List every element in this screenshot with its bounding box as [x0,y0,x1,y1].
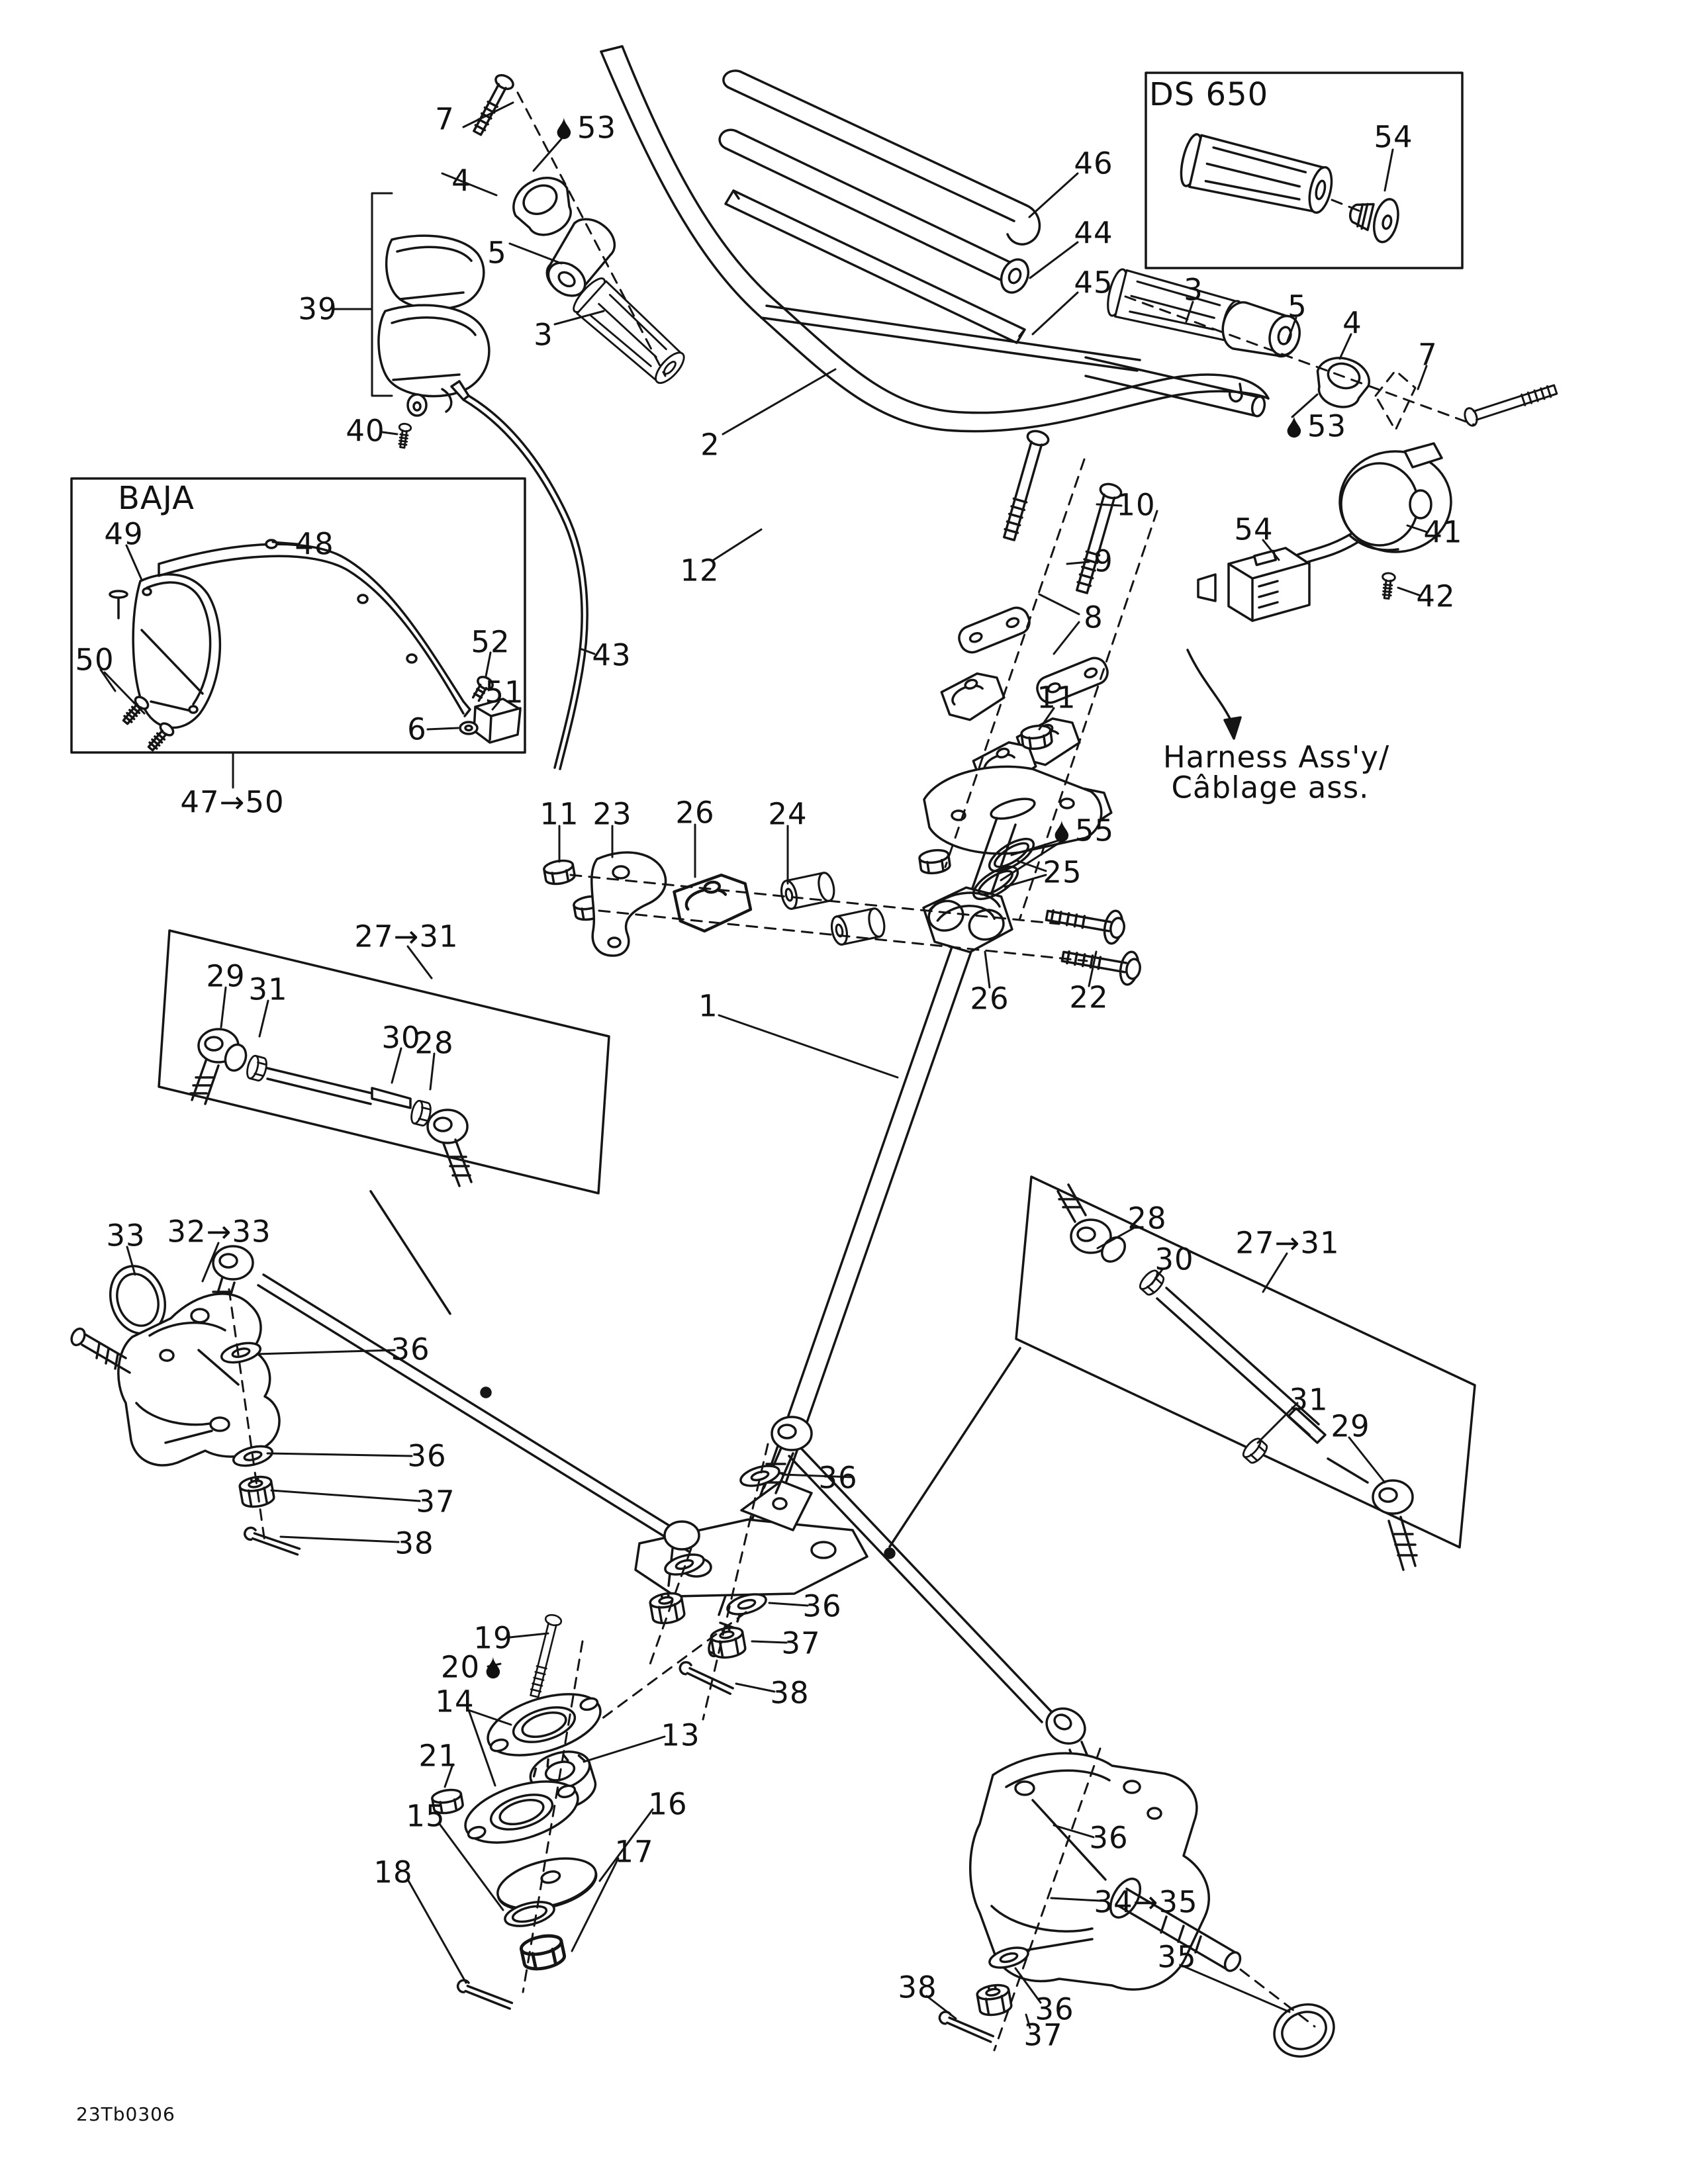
callout-33: 33 [106,1221,145,1251]
callout-3-right: 3 [1184,275,1203,305]
range-label-34-35: 34→35 [1094,1888,1197,1917]
callout-48: 48 [295,529,334,559]
callout-45: 45 [1074,268,1113,298]
screw-40 [397,423,411,448]
callout-21: 21 [418,1741,457,1771]
callout-4-left: 4 [451,166,471,196]
knuckle-right-assembly [761,1417,1342,2065]
callout-44: 44 [1074,218,1113,248]
callout-35: 35 [1157,1942,1196,1972]
tie-rod-assembled-left [208,1246,699,1586]
range-label-47-50: 47→50 [180,788,284,817]
screw-42 [1380,572,1395,599]
callout-37-c: 37 [781,1629,820,1659]
callout-13: 13 [661,1721,700,1751]
callout-23: 23 [592,799,632,829]
callout-5-left: 5 [487,238,507,268]
callout-38-lk: 38 [395,1529,434,1559]
callout-14: 14 [435,1687,474,1717]
harness-arrow [1188,650,1233,724]
callout-31-right: 31 [1289,1385,1328,1415]
callout-7-left: 7 [435,105,455,134]
baja-inset-title: BAJA [118,482,195,514]
callout-52: 52 [471,627,510,657]
callout-49: 49 [104,520,143,549]
callout-28-left: 28 [414,1028,453,1058]
callout-54-harness: 54 [1234,515,1273,545]
oil-drop-icon [1053,819,1070,842]
clamp-26-left [673,870,753,935]
callout-36-c2: 36 [802,1592,841,1621]
callout-37-rk: 37 [1023,2021,1062,2050]
switch-harness-assembly [1188,443,1451,739]
callout-10: 10 [1116,490,1155,520]
callout-36-lk2: 36 [407,1441,446,1471]
grip-end-cap-54 [1346,191,1402,245]
callout-50: 50 [75,645,114,675]
callout-15: 15 [406,1801,445,1831]
callout-51: 51 [485,678,524,707]
oil-drop-icon [1286,414,1303,438]
throttle-covers-39 [379,236,489,416]
callout-1: 1 [698,991,718,1021]
callout-46: 46 [1074,149,1113,179]
ds650-inset-title: DS 650 [1149,79,1268,111]
callout-28-right: 28 [1127,1204,1166,1234]
callout-26-lower: 26 [970,984,1009,1014]
collar-4-right [1310,352,1374,413]
handlebar-pads-drawing [720,71,1039,343]
link-plate-23 [592,852,666,956]
callout-5-right: 5 [1288,292,1307,322]
left-grip-assembly [379,72,690,769]
parts-diagram-page: 7 53 4 5 3 39 40 46 44 45 2 12 43 10 9 8… [0,0,1688,2184]
diagram-line-art [0,0,1688,2184]
callout-7-right: 7 [1418,340,1438,370]
callout-40: 40 [346,416,385,446]
callout-38-c: 38 [770,1678,809,1708]
connector-54 [1198,548,1309,621]
callout-39: 39 [298,295,337,324]
callout-42: 42 [1416,582,1455,612]
callout-25: 25 [1043,858,1082,887]
callout-2: 2 [700,430,720,460]
callout-17: 17 [614,1837,653,1867]
callout-24: 24 [768,799,807,829]
handlebar-clamp-stack [919,429,1123,875]
callout-12: 12 [680,556,719,586]
range-label-27-31-left: 27→31 [354,922,458,952]
callout-6: 6 [407,715,427,745]
knuckle-body-32 [118,1294,279,1465]
callout-9: 9 [1094,547,1113,576]
callout-36-rk1: 36 [1089,1823,1128,1853]
callout-18: 18 [373,1858,412,1888]
callout-26-upper: 26 [675,798,714,828]
callout-4-right: 4 [1342,308,1362,338]
callout-30-right: 30 [1154,1245,1194,1275]
callout-22: 22 [1069,983,1108,1013]
range-label-32-33: 32→33 [167,1217,271,1247]
right-grip-assembly [1086,267,1558,427]
range-label-27-31-right: 27→31 [1235,1228,1339,1258]
callout-53-right: 53 [1286,412,1346,441]
callout-36-c1: 36 [818,1463,857,1493]
callout-38-rk: 38 [898,1973,937,2003]
callout-11-upper: 11 [1037,683,1076,713]
callout-16: 16 [648,1790,687,1819]
tie-rod-box-right [890,1177,1475,1570]
harness-label-line1: Harness Ass'y/ [1163,743,1389,772]
oil-drop-icon [555,116,573,140]
callout-19: 19 [473,1623,512,1653]
callout-41: 41 [1423,518,1462,547]
callout-20: 20 [441,1653,502,1682]
callout-31-left: 31 [248,975,287,1005]
grip-3-left [569,274,690,389]
nut-17 [520,1933,566,1972]
oil-drop-icon [485,1655,502,1679]
drawing-code: 23Tb0306 [76,2105,175,2124]
callout-36-lk1: 36 [391,1335,430,1365]
callout-53-left: 53 [555,113,616,143]
callout-54-ds: 54 [1374,122,1413,152]
callout-8: 8 [1084,603,1103,633]
callout-11-mid: 11 [539,799,579,829]
callout-29-right: 29 [1331,1412,1370,1441]
callout-37-lk: 37 [416,1487,455,1517]
bolt-7-right [1463,381,1558,428]
harness-label-line2: Câblage ass. [1172,773,1370,803]
callout-55: 55 [1053,816,1114,846]
flange-14a [481,1682,608,1767]
callout-43: 43 [592,641,631,670]
callout-3-left: 3 [534,320,553,350]
knuckle-left-assembly [69,1246,699,1586]
callout-29-left: 29 [206,962,245,991]
